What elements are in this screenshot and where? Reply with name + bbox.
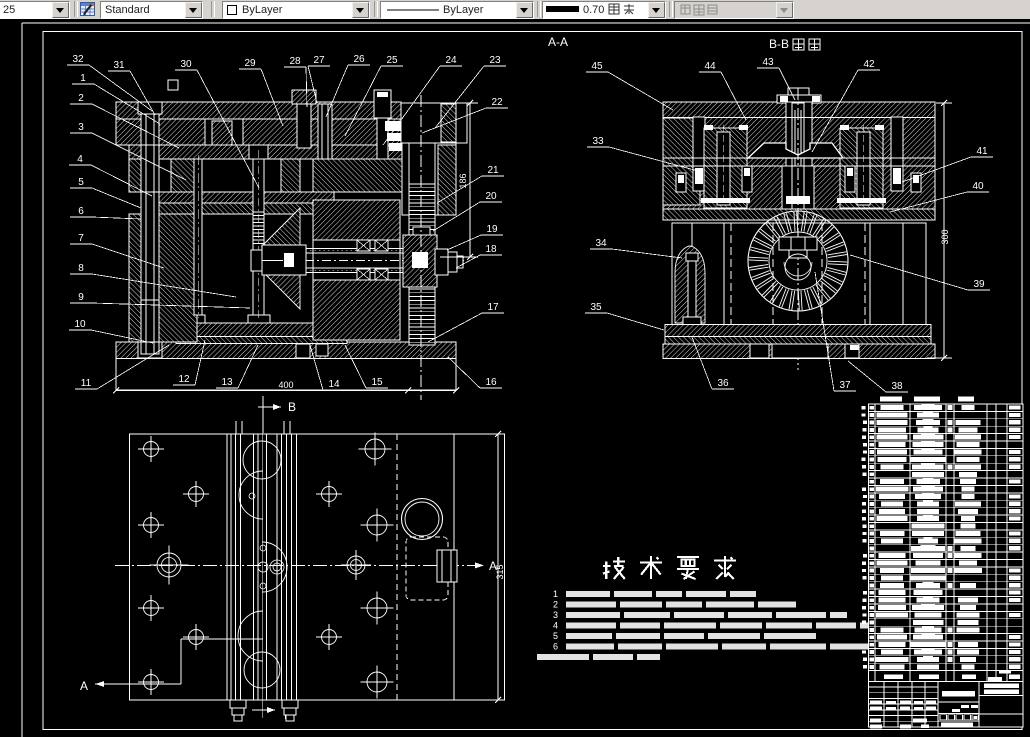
svg-text:6: 6 — [553, 642, 558, 652]
svg-text:23: 23 — [489, 55, 501, 66]
svg-text:B: B — [288, 400, 296, 414]
svg-text:14: 14 — [328, 379, 340, 390]
svg-text:34: 34 — [595, 238, 607, 249]
svg-text:12: 12 — [178, 374, 190, 385]
svg-text:27: 27 — [313, 55, 325, 66]
svg-text:8: 8 — [78, 263, 84, 274]
svg-text:10: 10 — [74, 319, 86, 330]
svg-text:43: 43 — [762, 57, 774, 68]
svg-text:2: 2 — [78, 93, 84, 104]
svg-text:37: 37 — [839, 380, 851, 391]
svg-text:20: 20 — [485, 191, 497, 202]
svg-text:44: 44 — [704, 61, 716, 72]
svg-text:30: 30 — [180, 59, 192, 70]
svg-text:6: 6 — [78, 206, 84, 217]
svg-text:15: 15 — [371, 377, 383, 388]
svg-text:26: 26 — [353, 54, 365, 65]
svg-text:24: 24 — [445, 55, 457, 66]
svg-text:19: 19 — [486, 224, 498, 235]
svg-text:11: 11 — [81, 378, 92, 389]
svg-text:4: 4 — [553, 621, 558, 631]
svg-text:28: 28 — [289, 56, 301, 67]
svg-text:186: 186 — [458, 173, 468, 188]
svg-text:1: 1 — [553, 589, 558, 599]
svg-text:3: 3 — [553, 610, 558, 620]
svg-text:22: 22 — [491, 97, 503, 108]
svg-text:35: 35 — [590, 302, 602, 313]
svg-text:1: 1 — [80, 73, 86, 84]
svg-text:A-A: A-A — [548, 35, 568, 49]
svg-text:7: 7 — [78, 233, 84, 244]
svg-text:400: 400 — [278, 380, 293, 390]
svg-text:A: A — [80, 679, 88, 693]
svg-text:5: 5 — [78, 177, 84, 188]
svg-text:41: 41 — [976, 146, 988, 157]
svg-text:36: 36 — [717, 378, 729, 389]
svg-text:315: 315 — [495, 564, 505, 579]
svg-text:32: 32 — [72, 54, 84, 65]
svg-text:17: 17 — [487, 302, 499, 313]
svg-text:45: 45 — [591, 61, 603, 72]
svg-text:25: 25 — [386, 55, 398, 66]
svg-text:9: 9 — [78, 292, 84, 303]
svg-text:38: 38 — [891, 381, 903, 392]
svg-text:21: 21 — [487, 165, 499, 176]
svg-text:300: 300 — [940, 229, 950, 244]
svg-text:39: 39 — [973, 279, 985, 290]
svg-text:5: 5 — [553, 631, 558, 641]
svg-text:2: 2 — [553, 600, 558, 610]
svg-text:3: 3 — [78, 122, 84, 133]
svg-text:18: 18 — [485, 244, 497, 255]
svg-text:4: 4 — [77, 154, 83, 165]
svg-text:16: 16 — [485, 377, 497, 388]
svg-text:31: 31 — [113, 60, 125, 71]
svg-text:13: 13 — [221, 377, 233, 388]
svg-text:42: 42 — [863, 59, 875, 70]
svg-text:29: 29 — [244, 58, 256, 69]
svg-text:40: 40 — [972, 181, 984, 192]
svg-text:B-B: B-B — [769, 37, 789, 51]
svg-text:33: 33 — [592, 136, 604, 147]
